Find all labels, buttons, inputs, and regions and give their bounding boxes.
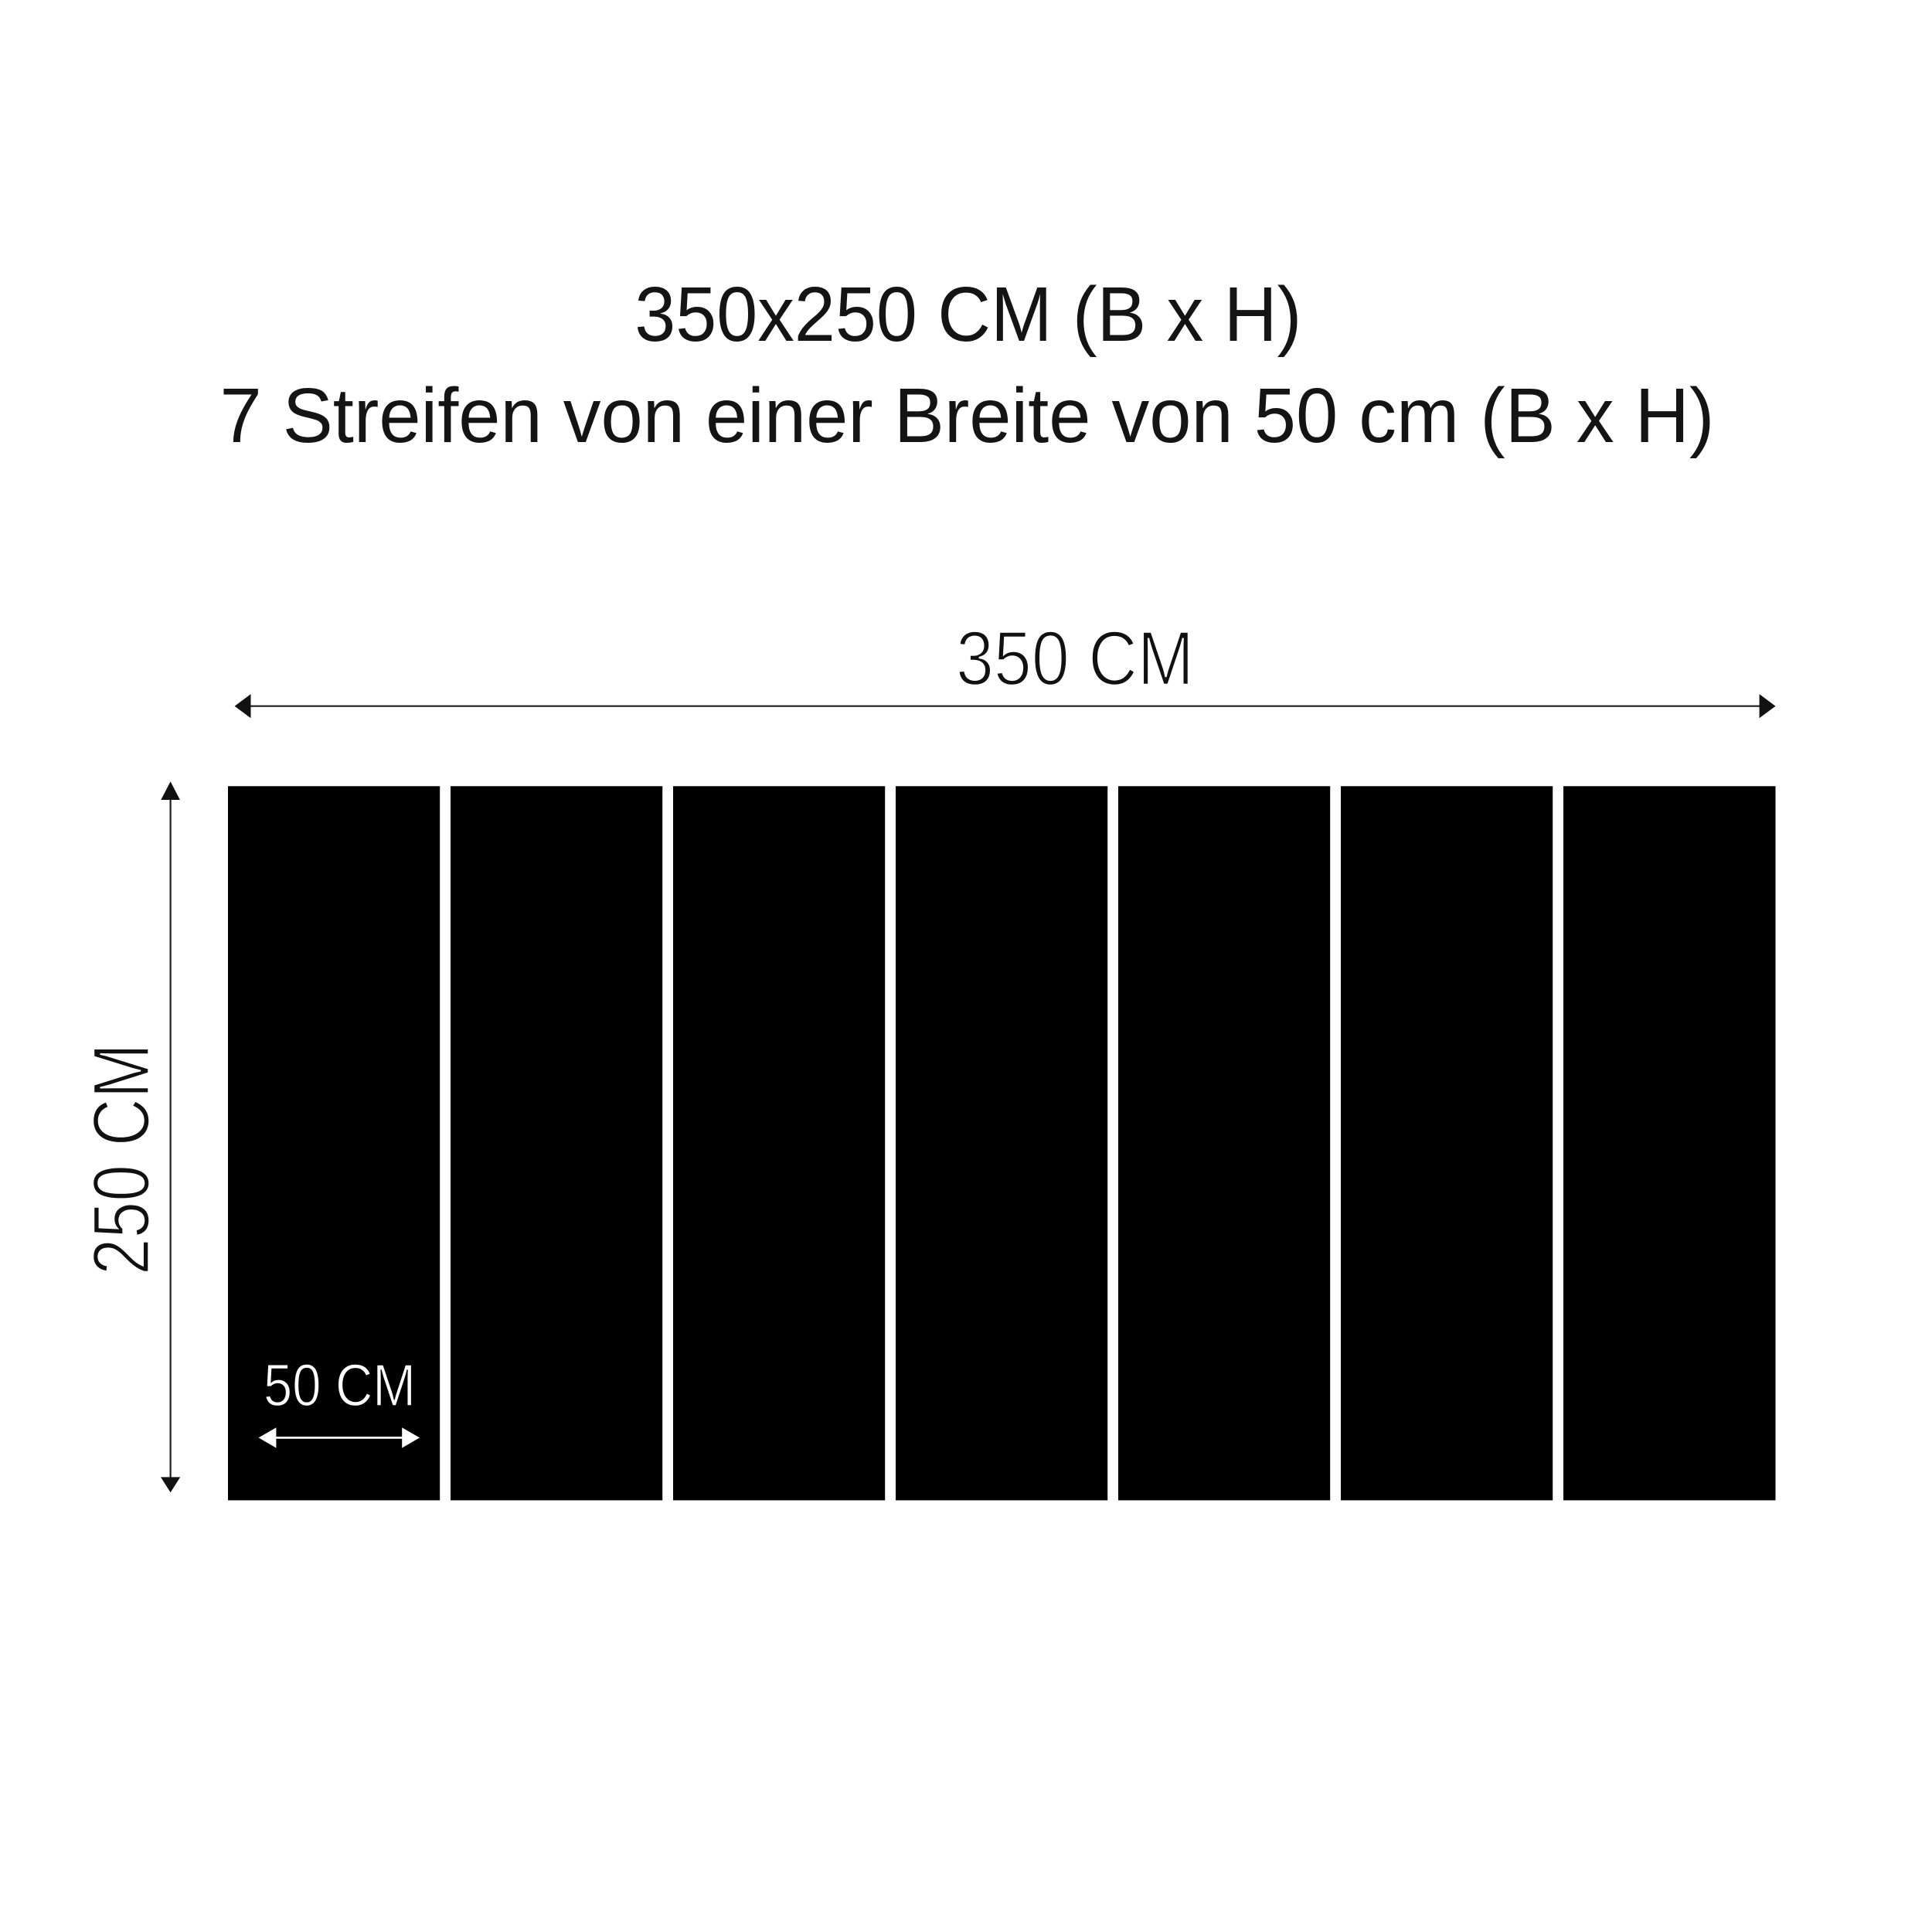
svg-text:350x250 CM (B x H): 350x250 CM (B x H) (634, 271, 1301, 358)
svg-text:250 CM: 250 CM (77, 1043, 167, 1275)
svg-text:350 CM: 350 CM (956, 615, 1194, 701)
svg-text:50 CM: 50 CM (264, 1352, 416, 1419)
svg-text:7 Streifen von einer Breite vo: 7 Streifen von einer Breite von 50 cm (B… (220, 372, 1715, 459)
